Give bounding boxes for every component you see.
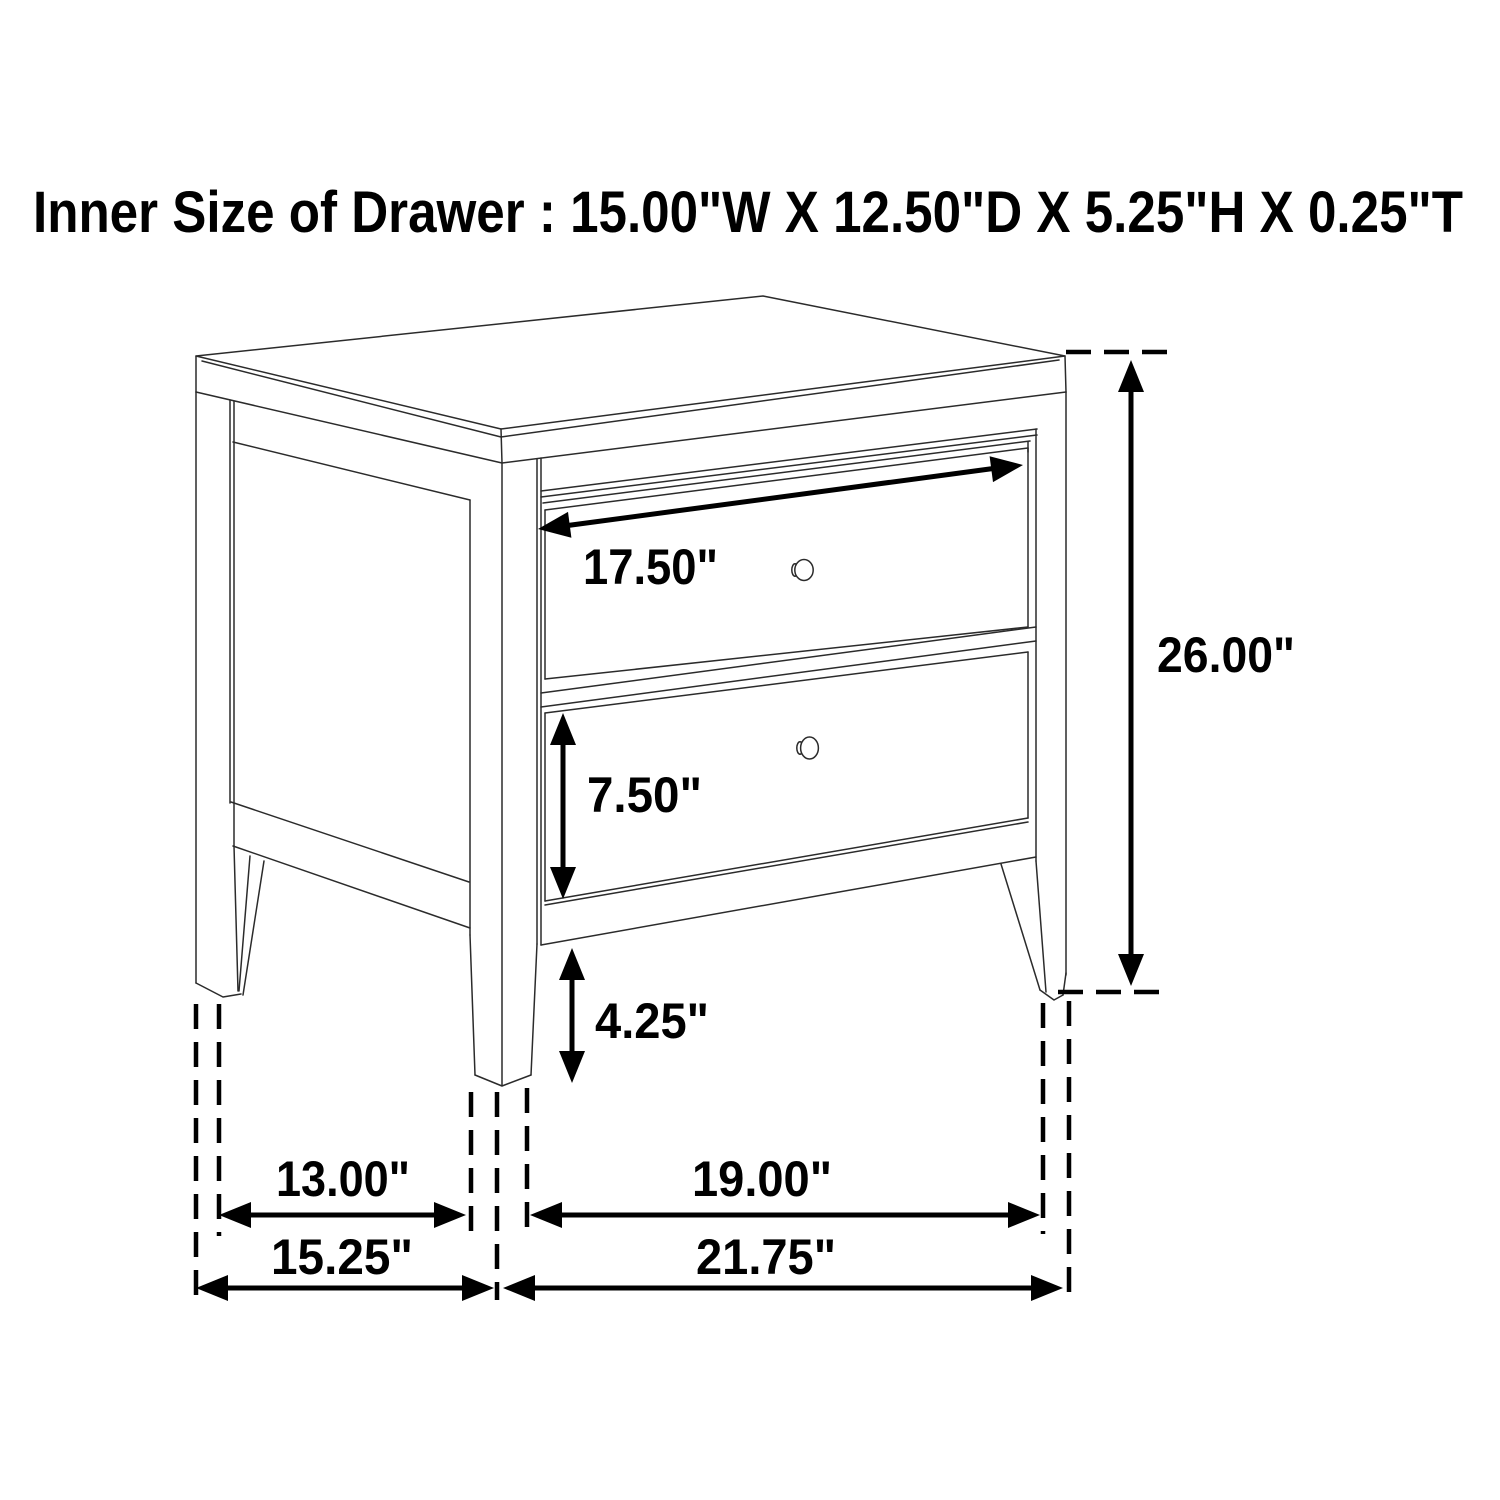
- svg-text:26.00": 26.00": [1157, 627, 1295, 683]
- svg-text:7.50": 7.50": [587, 767, 702, 823]
- svg-text:13.00": 13.00": [276, 1151, 410, 1207]
- svg-text:Inner Size of Drawer : 15.00"W: Inner Size of Drawer : 15.00"W X 12.50"D…: [33, 180, 1463, 245]
- svg-text:19.00": 19.00": [692, 1151, 832, 1207]
- svg-text:17.50": 17.50": [583, 539, 718, 595]
- svg-text:4.25": 4.25": [595, 993, 709, 1049]
- svg-text:21.75": 21.75": [696, 1229, 836, 1285]
- svg-text:15.25": 15.25": [271, 1229, 413, 1285]
